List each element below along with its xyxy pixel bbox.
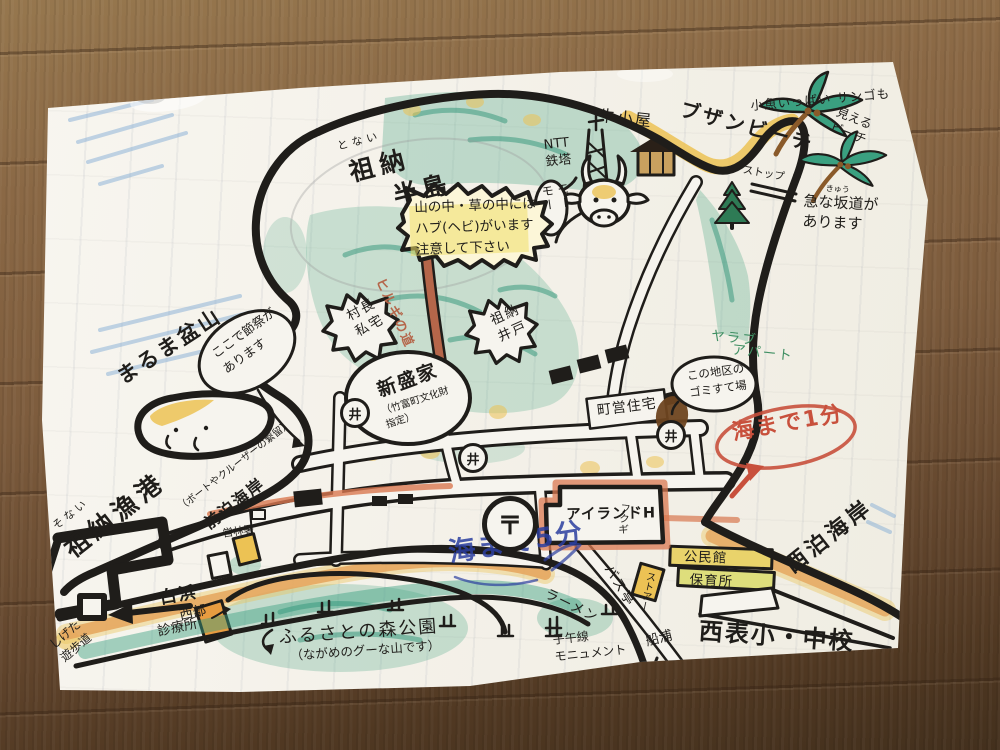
well-symbol: 井 <box>340 398 370 428</box>
well-symbol: 井 <box>656 420 686 450</box>
photo-of-hand-drawn-map: ブザンビーチ 小魚いっぱい サンゴも 見える ビーチ きゅう 急な坂道が ありま… <box>0 0 1000 750</box>
label-moo: モー モー <box>538 182 573 214</box>
label-steep-slope: 急な坂道が あります <box>802 192 879 235</box>
label-habu-warning: 山の中・草の中には ハブ(ヘビ)がいます 注意して下さい <box>414 194 538 261</box>
post-office-symbol: 〒 <box>482 496 538 552</box>
label-ntt-tower: NTT 鉄塔 <box>543 135 572 171</box>
well-symbol: 井 <box>458 443 488 473</box>
pine-tree-icon <box>715 182 749 228</box>
school-building <box>700 588 778 616</box>
label-community-hall: 公民館 <box>683 549 727 568</box>
label-nursery: 保育所 <box>689 572 733 592</box>
